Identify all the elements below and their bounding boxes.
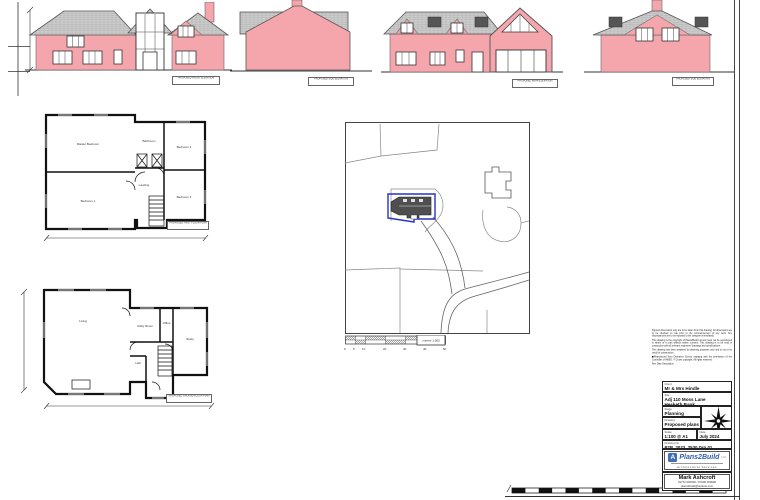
ground-floor-plan-caption: PROPOSED GROUND FLOOR PLAN xyxy=(166,394,212,403)
room-label-bedroom3: Bedroom 3 xyxy=(177,195,192,199)
room-label-bedroom1: Bedroom 1 xyxy=(81,199,96,203)
scale-value: 1:100 @ A1 xyxy=(665,434,695,439)
stage-value: Planning xyxy=(665,411,699,416)
logo-divider xyxy=(671,463,723,464)
room-label-landing: Landing xyxy=(139,183,150,187)
drawing-sheet: Master Bedroom Bathroom Bedroom 2 Bedroo… xyxy=(0,0,760,500)
note-paragraph: Reproduced from Ordnance Survey mapping … xyxy=(652,356,732,362)
note-paragraph: Figured dimensions only are to be taken … xyxy=(652,329,732,337)
site-location-plan xyxy=(345,122,530,334)
scale-tick-0: 0 xyxy=(344,347,346,351)
rear-elevation-drawing xyxy=(380,2,564,76)
side-elevation-2-caption: PROPOSED SIDE ELEVATION xyxy=(672,77,714,86)
room-label-utility: Utility Room xyxy=(137,324,154,328)
contact-email: plans2build@outlook.com xyxy=(681,485,713,489)
north-arrow-icon xyxy=(704,406,733,429)
drawing-title-cell: Drawing Proposed plans xyxy=(662,417,701,429)
stage-cell: Stage Planning xyxy=(662,406,701,417)
scale-cell: Scale 1:100 @ A1 xyxy=(662,429,697,440)
client-value: Mr & Mrs Hindle xyxy=(665,386,730,391)
contact-box: Mark Ashcroft 01772 000000 / 07000 00000… xyxy=(662,472,732,491)
logo-tagline: Architectural Services xyxy=(677,465,717,469)
date-cell: Date July 2024 xyxy=(697,429,732,440)
plans2build-logo-box: A Plans2Build Ltd Architectural Services xyxy=(662,449,732,472)
front-elevation-caption: PROPOSED FRONT ELEVATION xyxy=(172,76,220,85)
scale-tick-10: 10 xyxy=(362,347,365,351)
front-elevation-drawing xyxy=(22,2,234,74)
room-label-bedroom2: Bedroom 2 xyxy=(177,145,192,149)
note-paragraph: This drawing is the copyright of Plans2B… xyxy=(652,339,732,347)
date-value: July 2024 xyxy=(700,434,730,439)
note-paragraph: This drawing has been prepared for plann… xyxy=(652,349,732,355)
scale-tick-50: 50 xyxy=(443,347,446,351)
side-elevation-1-caption: PROPOSED SIDE ELEVATION xyxy=(308,77,354,86)
room-label-office: Office xyxy=(163,321,171,325)
room-label-hall: Hall xyxy=(135,361,141,365)
first-floor-plan-caption: PROPOSED FIRST FLOOR PLAN xyxy=(167,221,209,230)
rear-elevation-caption: PROPOSED REAR ELEVATION xyxy=(512,79,558,88)
north-arrow-cell xyxy=(701,406,732,429)
plans2build-logo-icon: A xyxy=(668,453,677,462)
drawing-title-value: Proposed plans xyxy=(665,422,699,427)
scale-tick-5: 5 xyxy=(353,347,355,351)
room-label-living: Living xyxy=(79,319,87,323)
site-cell: Site Adj 110 Moss Lane Hesketh Bank xyxy=(662,392,732,406)
logo-suffix: Ltd xyxy=(721,455,725,459)
side-elevation-2-drawing xyxy=(584,0,734,74)
drawing-number-cell: Drawing No P2B_2023_2530 Drg 01 xyxy=(662,440,732,449)
side-elevation-1-drawing xyxy=(228,0,374,74)
room-label-study: Study xyxy=(186,337,194,341)
client-cell: Client Mr & Mrs Hindle xyxy=(662,381,732,392)
scale-bar-units-label: metres 1:500 xyxy=(422,339,440,343)
scale-tick-20: 20 xyxy=(383,347,386,351)
site-plan-scale-bar: metres 1:500 xyxy=(345,335,455,347)
logo-name: Plans2Build xyxy=(679,454,719,461)
scale-tick-40: 40 xyxy=(423,347,426,351)
scale-tick-30: 30 xyxy=(403,347,406,351)
general-notes: Figured dimensions only are to be taken … xyxy=(652,329,732,377)
room-label-master-bedroom: Master Bedroom xyxy=(77,142,100,146)
ground-floor-plan-drawing: Living Utility Room Office Study Hall xyxy=(28,282,218,410)
revision-header: Rev Date Description xyxy=(652,363,732,366)
room-label-bathroom: Bathroom xyxy=(142,139,156,143)
